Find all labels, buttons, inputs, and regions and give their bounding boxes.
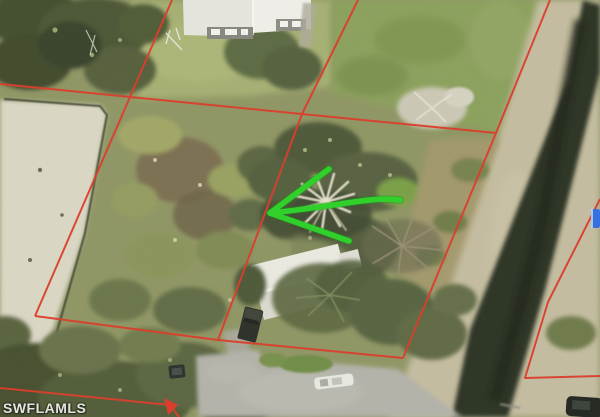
aerial-photo-canvas xyxy=(0,0,600,417)
aerial-photo: SWFLAMLS xyxy=(0,0,600,417)
watermark: SWFLAMLS xyxy=(3,400,86,416)
photo-grain-overlay xyxy=(0,0,600,417)
